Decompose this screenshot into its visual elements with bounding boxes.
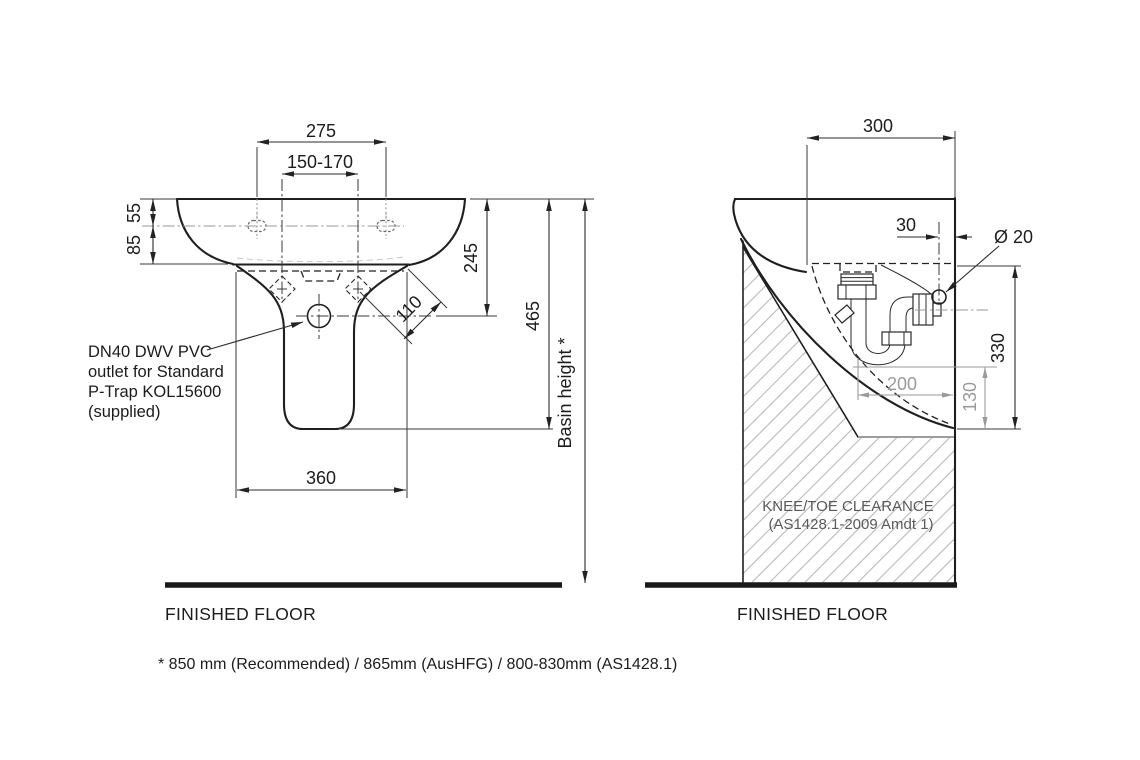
dim-300: 300 xyxy=(807,116,955,265)
dim-30: 30 xyxy=(896,215,972,237)
drawing-canvas: 275 150-170 55 85 110 245 xyxy=(0,0,1140,760)
dim-300-label: 300 xyxy=(863,116,893,136)
outlet-note-line1: DN40 DWV PVC xyxy=(88,343,212,361)
basin-installation-drawing: 275 150-170 55 85 110 245 xyxy=(0,0,1140,760)
outlet-note-line4: (supplied) xyxy=(88,403,160,421)
fixing-points xyxy=(269,179,371,303)
dim-dia20-label: Ø 20 xyxy=(994,227,1033,247)
dim-130-label: 130 xyxy=(960,382,980,412)
dim-150-170: 150-170 xyxy=(282,152,358,174)
recess-hidden-line xyxy=(301,271,341,281)
dim-200-label: 200 xyxy=(887,374,917,394)
dim-245-label: 245 xyxy=(461,243,481,273)
side-view: KNEE/TOE CLEARANCE (AS1428.1-2009 Amdt 1… xyxy=(645,116,1033,624)
dim-330-label: 330 xyxy=(988,333,1008,363)
floor-label-left: FINISHED FLOOR xyxy=(165,604,316,624)
outlet-note-line3: P-Trap KOL15600 xyxy=(88,383,221,401)
outlet-note: DN40 DWV PVC outlet for Standard P-Trap … xyxy=(88,322,303,421)
dim-150-170-label: 150-170 xyxy=(287,152,353,172)
dim-85-label: 85 xyxy=(124,235,144,255)
basin-front-outline xyxy=(177,199,465,281)
p-trap xyxy=(835,274,988,365)
pedestal-outline xyxy=(237,266,407,429)
dim-110-label: 110 xyxy=(392,292,426,326)
dim-basin-height: Basin height * xyxy=(555,199,585,583)
floor-label-right: FINISHED FLOOR xyxy=(737,604,888,624)
dim-basin-height-label: Basin height * xyxy=(555,337,575,448)
dim-245: 245 xyxy=(436,199,497,316)
dim-465-label: 465 xyxy=(523,301,543,331)
mounting-holes xyxy=(142,213,404,239)
dim-55-label: 55 xyxy=(124,203,144,223)
clearance-label-line1: KNEE/TOE CLEARANCE xyxy=(762,498,933,515)
dim-360: 360 xyxy=(236,272,407,498)
dim-110: 110 xyxy=(360,269,447,344)
footnote: * 850 mm (Recommended) / 865mm (AusHFG) … xyxy=(158,656,677,673)
clearance-label-line2: (AS1428.1-2009 Amdt 1) xyxy=(768,516,933,533)
dim-30-label: 30 xyxy=(896,215,916,235)
dim-360-label: 360 xyxy=(306,468,336,488)
dim-55-85: 55 85 xyxy=(124,199,228,264)
outlet-note-line2: outlet for Standard xyxy=(88,363,224,381)
dim-275-label: 275 xyxy=(306,121,336,141)
front-view: 275 150-170 55 85 110 245 xyxy=(88,121,594,624)
